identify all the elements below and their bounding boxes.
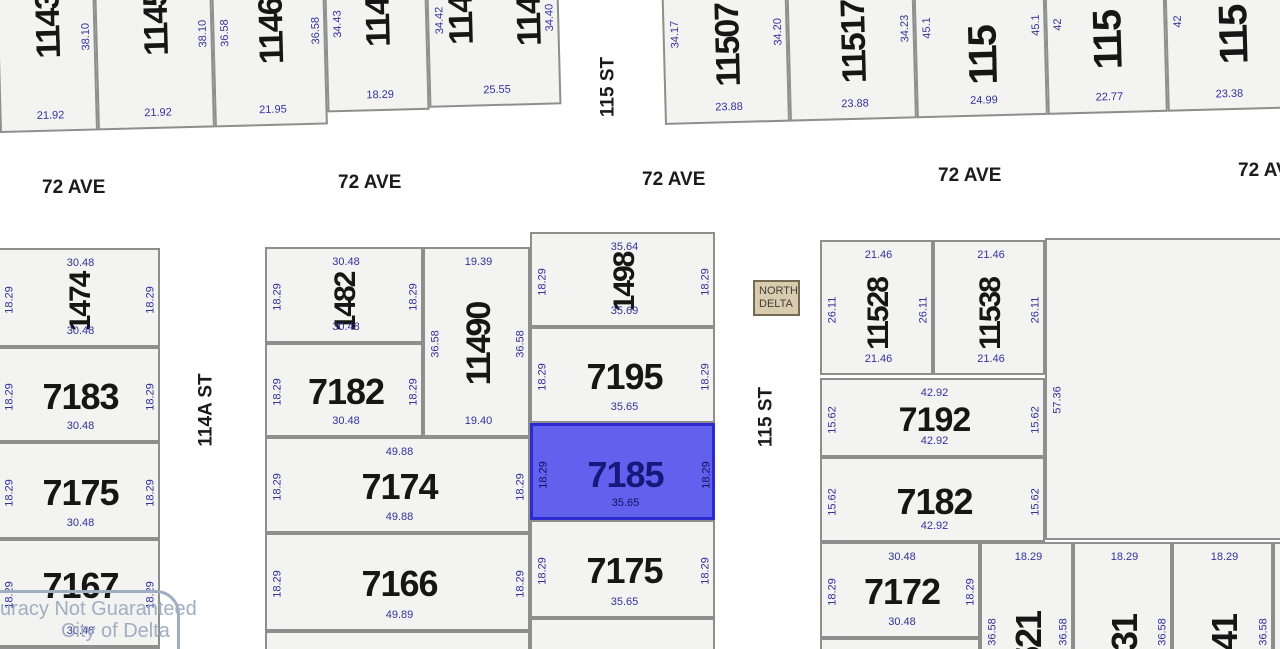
lot-number: 115 — [1087, 10, 1129, 70]
lot-7172[interactable]: 717230.4830.4818.2918.29 — [820, 542, 980, 638]
lot-dim-left: 34.42 — [434, 6, 446, 34]
lot-dim-left: 18.29 — [273, 473, 284, 501]
lot-115[interactable]: 11523.3842 — [1163, 0, 1280, 112]
lot-cW3[interactable] — [265, 631, 530, 649]
lot-dim-bottom: 30.48 — [67, 326, 95, 337]
lot-dim-top: 18.29 — [1015, 552, 1043, 563]
lot-dim-bottom: 42.92 — [921, 521, 949, 532]
lot-dim-right: 18.29 — [701, 557, 712, 585]
lot-115[interactable]: 11522.7742 — [1043, 0, 1168, 115]
lot-dim-bottom: 21.95 — [259, 104, 287, 116]
lot-number: 11517 — [835, 0, 871, 84]
lot-dim-left: 45.1 — [922, 17, 934, 39]
lot-11538[interactable]: 1153821.4621.4626.11 — [933, 240, 1045, 375]
lot-dim-bottom: 23.88 — [841, 99, 869, 111]
lot-7175[interactable]: 717530.4818.2918.29 — [0, 442, 160, 539]
street-label-72ave: 72 AVE — [642, 170, 705, 189]
lot-dim-left: 34.17 — [670, 20, 682, 48]
lot-dim-bottom: 21.46 — [977, 354, 1005, 365]
lot-7175[interactable]: 717535.6518.2918.29 — [530, 520, 715, 618]
lot-number: 7172 — [864, 574, 940, 610]
lot-521[interactable]: 52118.2936.5836.58 — [980, 542, 1073, 649]
lot-dim-right: 34.23 — [900, 14, 912, 42]
lot-number: 1149 — [511, 0, 547, 46]
parcel-map-canvas[interactable]: fa 114321.9238.10114521.9238.101146121.9… — [0, 0, 1280, 649]
lot-dim-bottom: 25.55 — [483, 85, 511, 97]
street-label-115st: 115 ST — [599, 57, 618, 117]
north-delta-label: NORTH DELTA — [753, 280, 800, 316]
lot-7167[interactable]: 716730.4818.2918.29 — [0, 539, 160, 647]
lot-dim-bottom: 35.69 — [611, 306, 639, 317]
lot-dim-left: 42 — [1173, 15, 1184, 28]
lot-dim-bottom: 30.48 — [332, 416, 360, 427]
street-label-72ave: 72 AVE — [938, 166, 1001, 185]
lot-number: 7195 — [586, 359, 662, 395]
lot-dim-right: 18.29 — [409, 283, 420, 311]
street-label-72ave: 72 AVE — [42, 178, 105, 197]
lot-dim-left: 57.36 — [1053, 386, 1064, 414]
lot-dim-bottom: 35.65 — [611, 402, 639, 413]
lot-dim-top: 30.48 — [67, 258, 95, 269]
lot-dim-right: 18.29 — [409, 378, 420, 406]
lot-number: 1147 — [360, 0, 396, 47]
lot-7182[interactable]: 718230.4818.2918.29 — [265, 343, 423, 437]
lot-541[interactable]: 54118.2936.58 — [1172, 542, 1273, 649]
lot-number: 11507 — [709, 3, 745, 87]
lot-7174[interactable]: 717449.8849.8818.2918.29 — [265, 437, 530, 533]
lot-dim-top: 49.88 — [386, 447, 414, 458]
lot-dim-left: 36.58 — [220, 19, 232, 47]
lot-number: 7192 — [899, 403, 971, 437]
lot-dim-right: 15.62 — [1031, 406, 1042, 434]
lot-dim-right: 36.58 — [516, 330, 527, 358]
lot-dim-bottom: 30.48 — [67, 626, 95, 637]
lot-dim-left: 15.62 — [828, 406, 839, 434]
lot-dim-right: 26.11 — [1031, 296, 1042, 323]
lot-dim-left: 18.29 — [539, 461, 550, 489]
lot-11528[interactable]: 1152821.4621.4626.1126.11 — [820, 240, 933, 375]
lot-rB[interactable]: 57.36 — [1045, 238, 1280, 540]
lot-1498[interactable]: 149835.6435.6918.2918.29 — [530, 232, 715, 327]
lot-dim-right: 26.11 — [919, 296, 930, 323]
lot-11490[interactable]: 1149019.3919.4036.5836.58 — [423, 247, 530, 437]
lot-1147[interactable]: 114718.2934.43 — [323, 0, 430, 112]
lot-dim-left: 18.29 — [273, 570, 284, 598]
parcel-block-right: 1152821.4621.4626.1126.111153821.4621.46… — [820, 230, 1280, 649]
lot-1474[interactable]: 147430.4830.4818.2918.29 — [0, 248, 160, 347]
lot-number: 115 — [962, 26, 1004, 86]
lot-dim-right: 36.58 — [311, 16, 323, 44]
lot-number: 1474 — [66, 273, 96, 332]
lot-number: 1143 — [30, 0, 66, 59]
lot-dim-bottom: 49.89 — [386, 610, 414, 621]
lot-dim-right: 18.29 — [146, 286, 157, 314]
lot-dim-left: 26.11 — [828, 296, 839, 323]
street-label-72ave: 72 AVE — [338, 173, 401, 192]
lot-dim-top: 19.39 — [465, 257, 493, 268]
lot-dim-right: 18.29 — [701, 268, 712, 296]
lot-dim-left: 18.29 — [273, 378, 284, 406]
lot-7183[interactable]: 718330.4818.2918.29 — [0, 347, 160, 442]
lot-dim-right: 18.29 — [701, 363, 712, 391]
lot-dim-right: 18.29 — [146, 581, 157, 609]
lot-dim-bottom: 24.99 — [970, 95, 998, 107]
lot-dim-left: 18.29 — [5, 581, 16, 609]
lot-number: 11490 — [462, 303, 496, 386]
lot-number: 7175 — [586, 553, 662, 589]
lot-dim-right: 45.1 — [1031, 14, 1043, 36]
lot-dim-left: 18.29 — [5, 286, 16, 314]
lot-dim-left: 18.29 — [538, 557, 549, 585]
lot-dim-bottom: 21.92 — [37, 110, 65, 122]
lot-dim-left: 42 — [1053, 18, 1064, 31]
lot-number: 7185 — [587, 457, 663, 493]
lot-number: 7167 — [42, 568, 118, 604]
lot-dim-top: 21.46 — [865, 250, 893, 261]
lot-number: 115 — [1213, 5, 1255, 65]
lot-dim-right: 18.29 — [146, 383, 157, 411]
lot-7166[interactable]: 716649.8918.2918.29 — [265, 533, 530, 631]
lot-dim-bottom: 42.92 — [921, 436, 949, 447]
lot-1143[interactable]: 114321.9238.10 — [0, 0, 98, 133]
lot-7182[interactable]: 718242.9215.6215.62 — [820, 457, 1045, 542]
lot-dim-top: 35.64 — [611, 242, 639, 253]
lot-dim-bottom: 23.38 — [1215, 89, 1243, 101]
lot-dim-bottom: 18.29 — [366, 90, 394, 102]
street-label-115st: 115 ST — [757, 387, 776, 447]
lot-1482[interactable]: 148230.4830.4818.2918.29 — [265, 247, 423, 343]
north-delta-line2: DELTA — [759, 298, 794, 311]
lot-number: 11461 — [253, 0, 289, 65]
lot-7185[interactable]: 718535.6518.2918.29 — [530, 423, 715, 520]
lot-number: 1148 — [443, 0, 479, 45]
lot-number: 521 — [1011, 612, 1047, 649]
lot-dim-left: 18.29 — [538, 268, 549, 296]
lot-dim-bottom: 21.92 — [144, 107, 172, 119]
lot-number: 7182 — [896, 484, 972, 520]
lot-dim-right: 18.29 — [516, 473, 527, 501]
lot-7195[interactable]: 719535.6518.2918.29 — [530, 327, 715, 423]
lot-dim-right: 18.29 — [516, 570, 527, 598]
lot-115[interactable]: 11524.9945.145.1 — [912, 0, 1048, 118]
lot-dim-left: 18.29 — [5, 479, 16, 507]
lot-number: 11528 — [864, 278, 894, 350]
lot-1148[interactable]: 1148114925.5534.4234.40 — [425, 0, 562, 108]
lot-dim-bottom: 30.48 — [332, 322, 360, 333]
lot-dim-left: 15.62 — [828, 488, 839, 516]
lot-number: 1145 — [138, 0, 174, 56]
lot-531[interactable]: 53118.2936.58 — [1073, 542, 1172, 649]
lot-dim-top: 21.46 — [977, 250, 1005, 261]
north-delta-line1: NORTH — [759, 285, 794, 298]
lot-dim-top: 30.48 — [888, 552, 916, 563]
lot-cC5[interactable] — [530, 618, 715, 649]
lot-11517[interactable]: 1151723.8834.23 — [785, 0, 917, 122]
street-label-72ave: 72 AVE — [1238, 161, 1280, 180]
lot-dim-top: 18.29 — [1211, 552, 1239, 563]
lot-dim-right: 38.10 — [198, 19, 210, 47]
lot-dim-right: 36.58 — [1158, 618, 1169, 646]
lot-11507[interactable]: 1150723.8834.1734.20 — [660, 0, 790, 125]
lot-dim-left: 18.29 — [538, 363, 549, 391]
lot-dim-right: 38.10 — [81, 22, 93, 50]
lot-number: 531 — [1107, 615, 1143, 649]
lot-dim-left: 18.29 — [273, 283, 284, 311]
lot-dim-left: 34.43 — [332, 10, 344, 38]
lot-rE[interactable] — [820, 638, 980, 649]
lot-number: 7183 — [42, 379, 118, 415]
lot-number: 7175 — [42, 475, 118, 511]
lot-dim-right: 18.29 — [146, 479, 157, 507]
lot-11461[interactable]: 1146121.9536.5836.58 — [210, 0, 328, 127]
lot-dim-left: 36.58 — [431, 330, 442, 358]
lot-dim-right: 15.62 — [1031, 488, 1042, 516]
lot-dim-bottom: 30.48 — [67, 518, 95, 529]
lot-dim-bottom: 19.40 — [465, 416, 493, 427]
lot-dim-top: 18.29 — [1111, 552, 1139, 563]
lot-dim-right: 34.20 — [773, 17, 785, 45]
lot-dim-right: 36.58 — [1059, 618, 1070, 646]
lot-dim-right: 36.58 — [1259, 618, 1270, 646]
lot-1145[interactable]: 114521.9238.10 — [93, 0, 215, 130]
lot-dim-bottom: 21.46 — [865, 354, 893, 365]
lot-dim-left: 36.58 — [988, 618, 999, 646]
lot-dim-bottom: 35.65 — [611, 597, 639, 608]
lot-number: 541 — [1207, 615, 1243, 649]
lot-number: 7166 — [361, 566, 437, 602]
lot-dim-bottom: 30.48 — [67, 421, 95, 432]
lot-dim-left: 18.29 — [828, 578, 839, 606]
lot-number: 7182 — [308, 374, 384, 410]
lot-dim-right: 18.29 — [966, 578, 977, 606]
street-label-114ast: 114A ST — [197, 373, 216, 446]
lot-number: 11538 — [976, 278, 1006, 350]
lot-dim-bottom: 30.48 — [888, 617, 916, 628]
lot-dim-top: 30.48 — [332, 257, 360, 268]
lot-dim-right: 34.40 — [544, 3, 556, 31]
lot-dim-top: 42.92 — [921, 388, 949, 399]
lot-number: 7174 — [361, 469, 437, 505]
lot-rD5[interactable] — [1273, 542, 1280, 649]
lot-dim-left: 18.29 — [5, 383, 16, 411]
lot-dim-bottom: 22.77 — [1096, 92, 1124, 104]
lot-number: 1498 — [610, 253, 640, 312]
lot-dim-right: 18.29 — [702, 461, 713, 489]
lot-dim-bottom: 35.65 — [612, 498, 640, 509]
lot-dim-bottom: 49.88 — [386, 512, 414, 523]
lot-dim-bottom: 23.88 — [715, 102, 743, 114]
lot-7192[interactable]: 719242.9242.9215.6215.62 — [820, 378, 1045, 457]
